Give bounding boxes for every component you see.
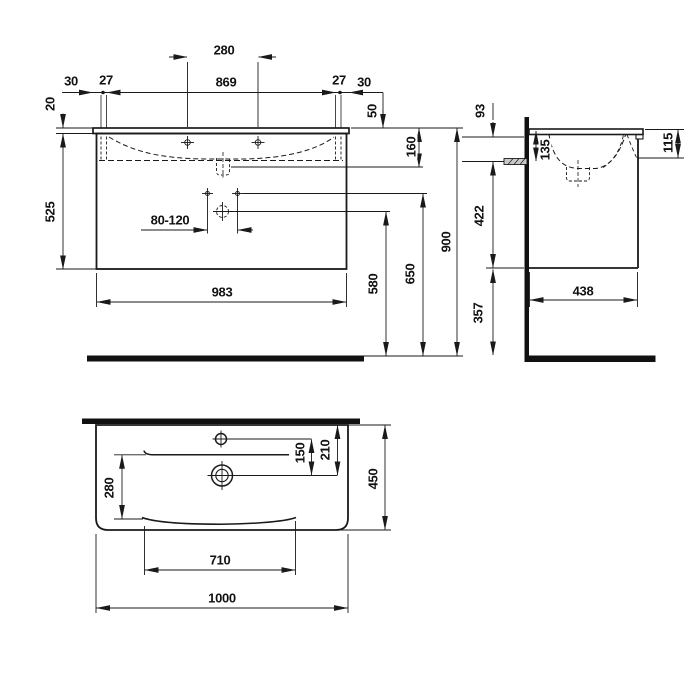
dim-side-fixing-offset: 93 (474, 103, 487, 119)
dim-side-cabinet-depth: 438 (572, 285, 595, 298)
dim-plan-rear-to-drain: 210 (319, 439, 332, 462)
dim-side-bottom-clearance: 357 (472, 302, 485, 325)
dim-front-tap-height: 50 (366, 103, 379, 119)
dim-plan-bowl-width: 710 (209, 554, 232, 567)
dim-front-drain-range: 80-120 (150, 214, 191, 227)
dim-front-inset-left: 27 (98, 74, 114, 87)
drain-plan (208, 461, 237, 490)
wall-line-side (525, 117, 530, 362)
fixing-marker-right (232, 188, 243, 199)
front-view (56, 57, 463, 362)
plan-view (82, 419, 391, 614)
tap-hole-plan (213, 431, 230, 448)
dim-front-total-height: 900 (440, 231, 453, 254)
dim-front-basin-depth: 160 (405, 136, 418, 159)
dim-front-edge-right: 30 (356, 76, 372, 89)
dim-plan-bowl-depth: 280 (103, 477, 116, 500)
dim-plan-tap-to-drain: 150 (294, 442, 307, 465)
fixing-marker-left (202, 188, 213, 199)
tap-hole-marker-left (181, 136, 194, 149)
side-view (462, 103, 684, 362)
dim-front-edge-left: 30 (63, 75, 79, 88)
dim-front-tap-span: 869 (215, 76, 238, 89)
dim-side-front-height: 115 (662, 132, 675, 154)
dim-plan-total-depth: 450 (367, 468, 380, 491)
dim-front-tap-spacing: 280 (213, 44, 236, 57)
dim-front-inset-right: 27 (331, 74, 347, 87)
floor-line-front (87, 356, 364, 362)
dim-front-cabinet-height: 525 (44, 201, 57, 224)
dim-front-top-thickness: 20 (44, 96, 57, 112)
dim-plan-total-width: 1000 (207, 592, 237, 605)
dim-front-cabinet-width: 983 (211, 286, 234, 299)
siphon-marker (213, 202, 232, 221)
drawing-linework (0, 0, 700, 700)
wall-line-plan (82, 419, 360, 425)
floor-line-side (525, 356, 656, 363)
dim-side-fixing-depth: 135 (539, 139, 552, 162)
dim-side-fixing-to-bottom: 422 (473, 205, 486, 228)
dim-front-fixing-height: 650 (404, 263, 417, 286)
technical-drawing-page: 280 30 27 869 27 30 20 50 160 525 80-120… (0, 0, 700, 700)
wall-bolt (462, 159, 527, 165)
dim-front-trap-height: 580 (367, 273, 380, 296)
tap-hole-marker-right (252, 136, 265, 149)
